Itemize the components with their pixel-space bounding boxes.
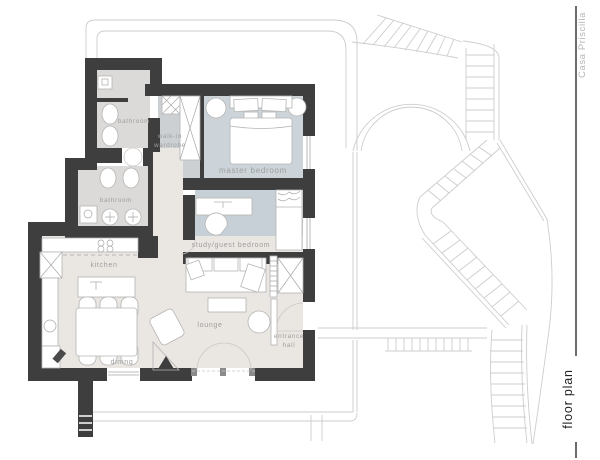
label-entrance-2: hall [283,342,296,349]
label-entrance-1: entrance [274,333,304,340]
label-lounge: lounge [197,322,222,329]
stair-top-treads [363,18,454,56]
bidet-mid-bath [123,168,139,188]
coffee-table [208,298,246,312]
bed-pillow-right [262,98,287,111]
label-study: study/guest bedroom [192,242,271,249]
pouf [248,311,270,333]
bed-duvet [230,118,292,164]
kitchen-island [78,277,135,297]
sink-top-bath [98,76,112,89]
bed-pillow-left [234,98,259,111]
dining-table [76,308,137,356]
terrace-gate-lines [311,415,322,441]
stair-right-treads [466,55,494,132]
master-window [307,136,310,169]
stair-top-rails [352,15,462,58]
floor-plan-sheet: bathroom walk-in wardrobe master bedroom… [0,0,600,460]
label-walk-in-1: walk-in [157,133,183,140]
door-posts [191,368,255,376]
label-kitchen: kitchen [90,262,117,269]
outer-right-edge [497,140,552,444]
walkway-steps [385,338,472,351]
curved-wall-inner [361,107,462,151]
bidet-top-bath [102,126,118,146]
floor-plan-drawing: bathroom walk-in wardrobe master bedroom… [0,0,600,460]
study-window [307,218,310,249]
label-dining: dining [111,359,134,366]
project-title: Casa Priscilla [577,12,588,78]
label-bathroom-mid: bathroom [100,197,132,204]
stair-zag-treads [433,231,519,316]
terrace-boundary-right [353,152,357,412]
toilet-top-bath [102,104,118,124]
label-master-bedroom: master bedroom [219,166,287,175]
stair-zig-treads [428,147,492,201]
kitchen-counter-top [42,238,138,252]
stair-right-rails [463,41,499,140]
washing-machine [80,206,97,223]
entrance-walkway [318,328,487,338]
label-bathroom-top: bathroom [118,118,150,125]
stair-zag-rails [422,222,527,328]
label-walk-in-2: wardrobe [153,142,186,149]
terrace-bottom-edges [92,412,357,421]
study-desk [196,198,252,215]
title-sidebar: Casa Priscilla floor plan [561,6,588,458]
kitchen-window [108,372,139,375]
kitchen-counter-left [42,278,58,346]
toilet-mid-bath [100,168,116,188]
sofa-back-2 [214,258,238,271]
stair-lower-rails [491,325,532,444]
master-rug-left [206,98,226,118]
bathroom-door-circle [124,148,142,166]
stair-landing [417,197,443,235]
hallway-floor [153,148,183,240]
sheet-title: floor plan [561,369,575,428]
